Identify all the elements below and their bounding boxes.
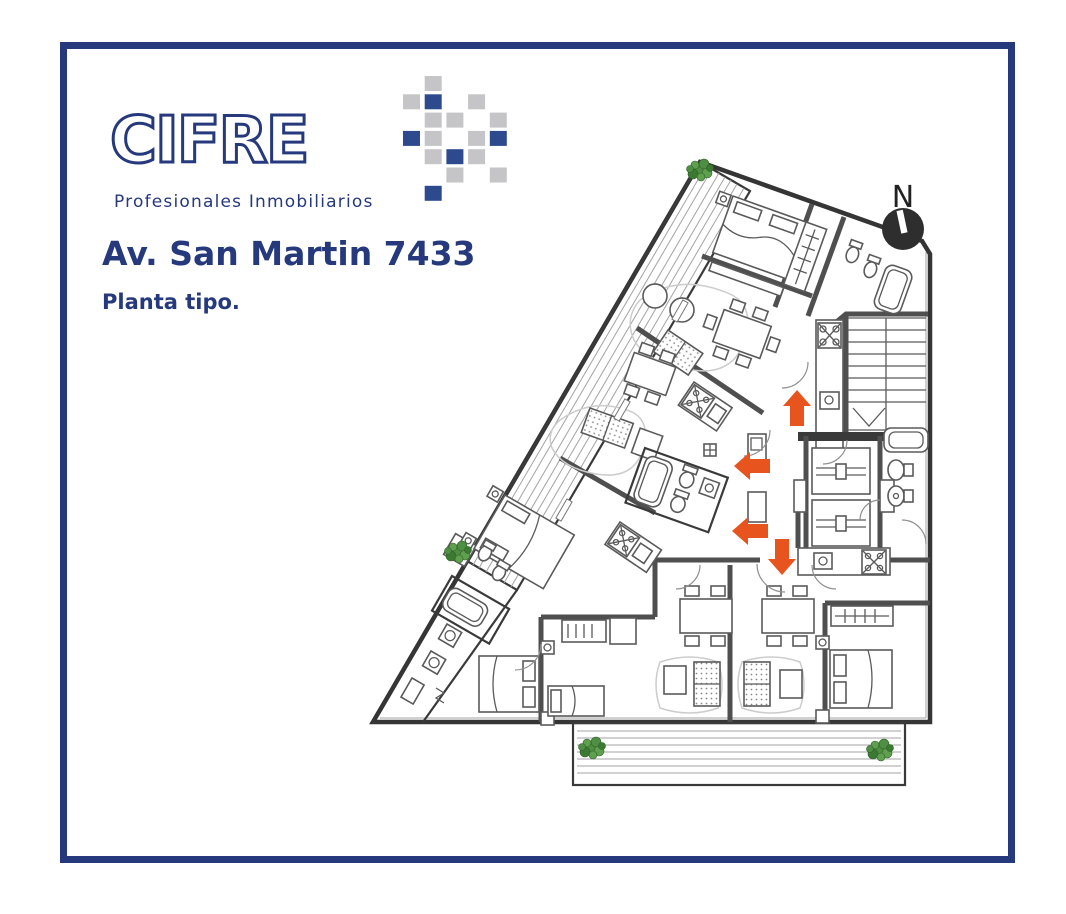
- north-compass: N: [882, 180, 924, 250]
- bottom-terrace: [573, 723, 905, 785]
- floor-plan: N: [0, 0, 1066, 914]
- closet-bottom-left: [562, 618, 636, 644]
- wardrobe-bottom-right: [831, 606, 893, 626]
- plant: [579, 737, 606, 759]
- flyer-page: CIFRE Profesionales Inmobiliarios Av. Sa…: [0, 0, 1066, 914]
- kitchen-bottom-right: [798, 548, 890, 575]
- plant: [867, 739, 894, 761]
